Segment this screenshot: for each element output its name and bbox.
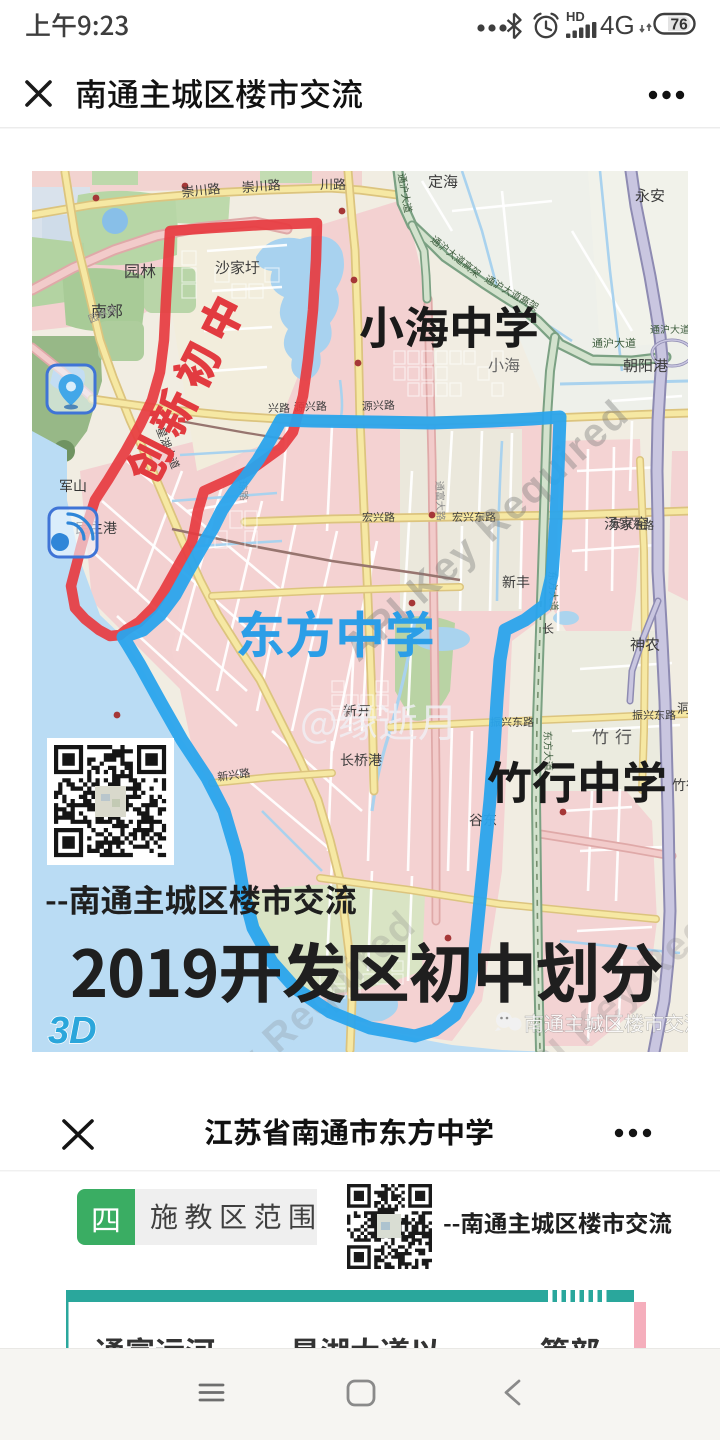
svg-text:3D: 3D	[48, 1010, 97, 1052]
svg-text:HD: HD	[566, 9, 585, 24]
svg-text:76: 76	[671, 17, 689, 34]
svg-text:4G: 4G	[600, 10, 635, 40]
